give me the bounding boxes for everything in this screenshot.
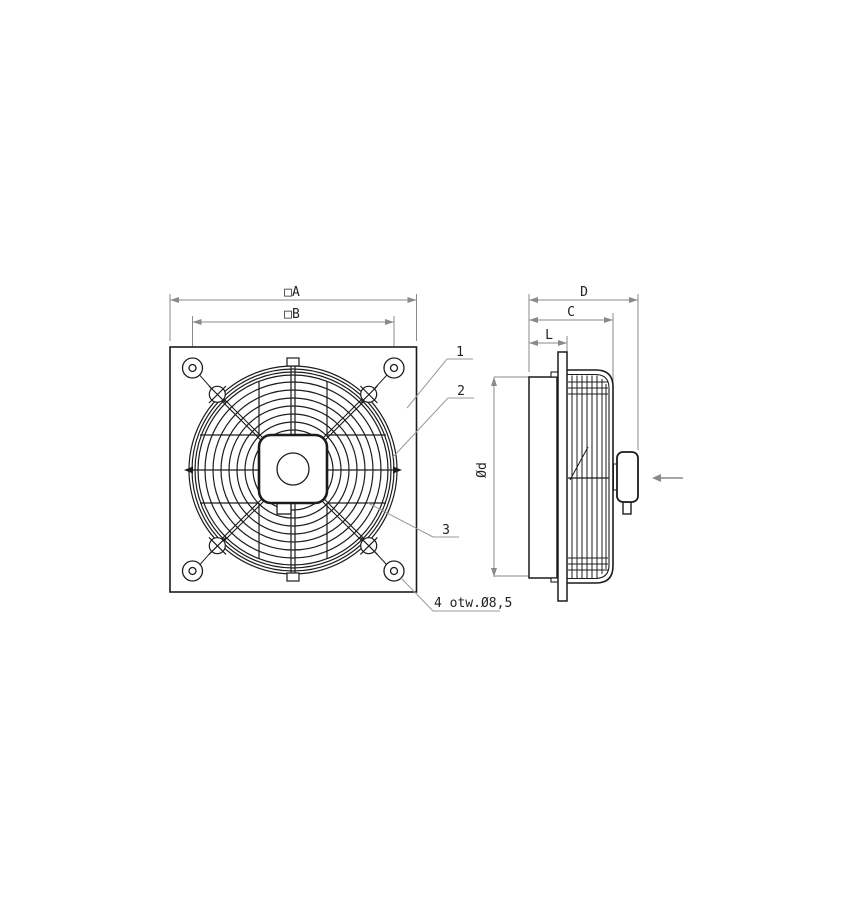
terminal-box-body <box>617 452 638 502</box>
callout-3-label: 3 <box>442 523 450 538</box>
drawing-svg: □A □B <box>0 0 846 900</box>
mounting-hole <box>183 561 203 581</box>
clamp <box>360 537 377 554</box>
cable-gland <box>623 502 631 514</box>
holes-note-label: 4 otw.Ø8,5 <box>434 596 512 611</box>
clamp <box>360 386 377 403</box>
guard-basket-side <box>567 370 613 583</box>
basket-wires <box>568 376 609 579</box>
dim-arrow-left <box>193 319 202 325</box>
callout-2-label: 2 <box>457 384 465 399</box>
dim-label-hole-spacing: □B <box>284 307 300 322</box>
clamp <box>209 537 226 554</box>
hub-center-circle <box>277 453 309 485</box>
fan-technical-drawing: □A □B <box>0 0 846 900</box>
side-view: D C L Ød <box>475 285 683 601</box>
dim-label-total-depth: D <box>580 285 588 300</box>
front-view: □A □B <box>170 285 417 592</box>
holes-note: 4 otw.Ø8,5 <box>401 578 512 611</box>
dimension-guard-depth <box>529 313 613 383</box>
dim-label-motor-depth: L <box>545 328 553 343</box>
dim-label-impeller-diameter: Ød <box>475 462 490 478</box>
clamp <box>209 386 226 403</box>
mounting-hole <box>384 358 404 378</box>
mounting-hole <box>183 358 203 378</box>
dim-arrow-right <box>385 319 394 325</box>
dim-arrow-left <box>170 297 179 303</box>
hub <box>259 435 327 514</box>
terminal-box <box>614 452 639 514</box>
dim-label-outer-square: □A <box>284 285 300 300</box>
mounting-plate-edge <box>558 352 567 601</box>
dim-label-guard-depth: C <box>567 305 575 320</box>
dim-arrow-right <box>408 297 417 303</box>
airflow-arrow-icon <box>652 474 683 482</box>
callout-1-label: 1 <box>456 345 464 360</box>
